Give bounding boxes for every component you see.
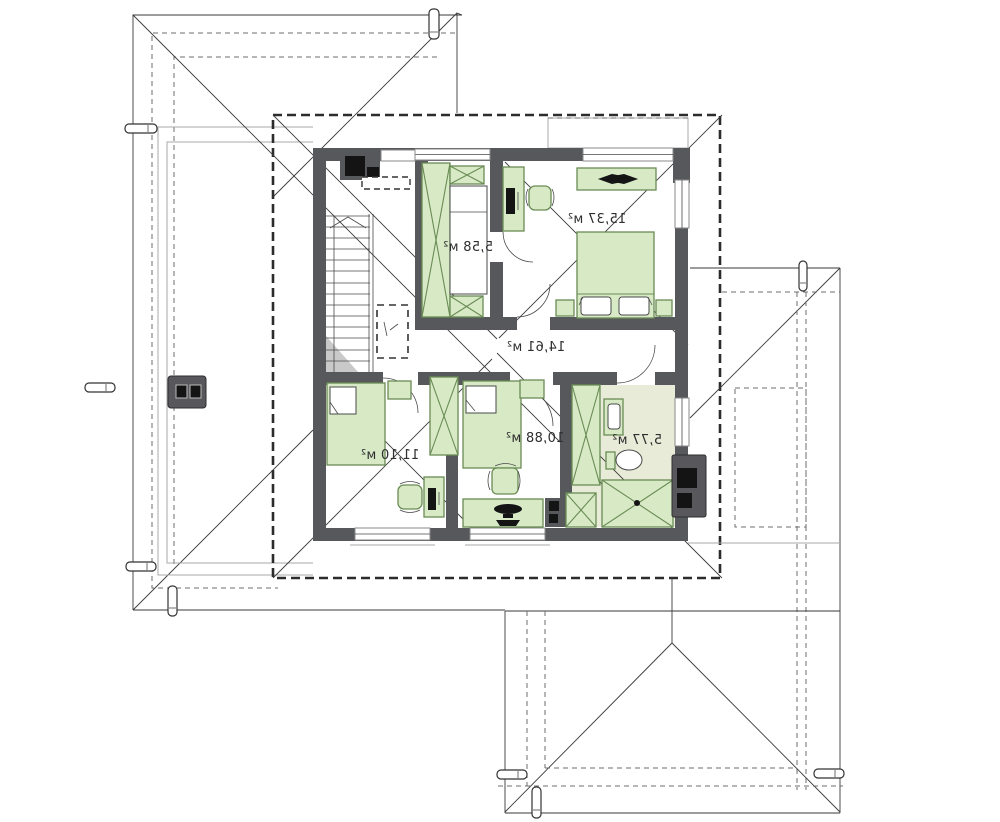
label-bedroom-bottom-left: 11,10 м² — [361, 448, 420, 463]
nightstand-right — [656, 300, 672, 316]
wardrobe-tall — [572, 385, 600, 485]
downspout-bottom-roof-v — [532, 787, 541, 818]
label-closet: 5,58 м² — [443, 240, 493, 255]
window-bottom-left — [350, 528, 435, 545]
desk-chair — [526, 186, 554, 210]
nightstand — [388, 381, 411, 399]
floor-plan-svg: 15,37 м² 5,58 м² 14,61 м² 11,10 м² 10,88… — [0, 0, 1000, 822]
downspout-left-mid — [85, 383, 115, 392]
wardrobe-bottom — [450, 296, 483, 317]
chimney-right-wall — [672, 455, 706, 517]
duct-shaft — [545, 498, 562, 527]
downspout-bottom-roof-right — [814, 769, 844, 778]
cabinet-x — [566, 493, 596, 527]
floor-plan-drawing: 15,37 м² 5,58 м² 14,61 м² 11,10 м² 10,88… — [0, 0, 1000, 822]
double-bed — [577, 232, 654, 318]
window-top-left — [415, 149, 490, 160]
window-bottom-center — [465, 528, 550, 545]
sink — [604, 399, 623, 435]
chimney-left-roof — [168, 376, 206, 408]
right-roof-outline — [688, 268, 840, 813]
desk — [463, 499, 543, 527]
shower — [602, 480, 673, 527]
label-hall: 14,61 м² — [507, 340, 566, 355]
nightstand — [520, 380, 544, 398]
downspout-top — [429, 9, 439, 39]
chimney-top-left — [340, 150, 380, 180]
desk — [424, 477, 444, 517]
label-bedroom-bottom-center: 10,88 м² — [506, 431, 565, 446]
downspout-bottom-roof-left — [497, 770, 527, 779]
label-bathroom: 5,77 м² — [612, 433, 662, 448]
downspout-left-top — [125, 124, 157, 133]
desk-chair — [398, 482, 422, 513]
toilet — [606, 450, 642, 470]
bottom-right-roof-outline — [498, 578, 843, 813]
label-bedroom-top-right: 15,37 м² — [568, 212, 627, 227]
nightstand-left — [556, 300, 574, 316]
wardrobe — [430, 377, 458, 455]
downspout-right-roof — [799, 261, 807, 291]
window-top-right-balcony — [583, 148, 673, 161]
corner-pillar — [673, 148, 690, 183]
dresser — [577, 168, 656, 190]
downspout-bottom-left-h — [126, 562, 156, 571]
single-bed — [463, 381, 521, 468]
downspout-bottom-left-v — [168, 586, 177, 616]
wardrobe-top — [450, 166, 484, 184]
window-right-bathroom — [675, 398, 689, 446]
balcony-slab — [548, 118, 688, 148]
window-right-bedroom — [675, 180, 689, 228]
